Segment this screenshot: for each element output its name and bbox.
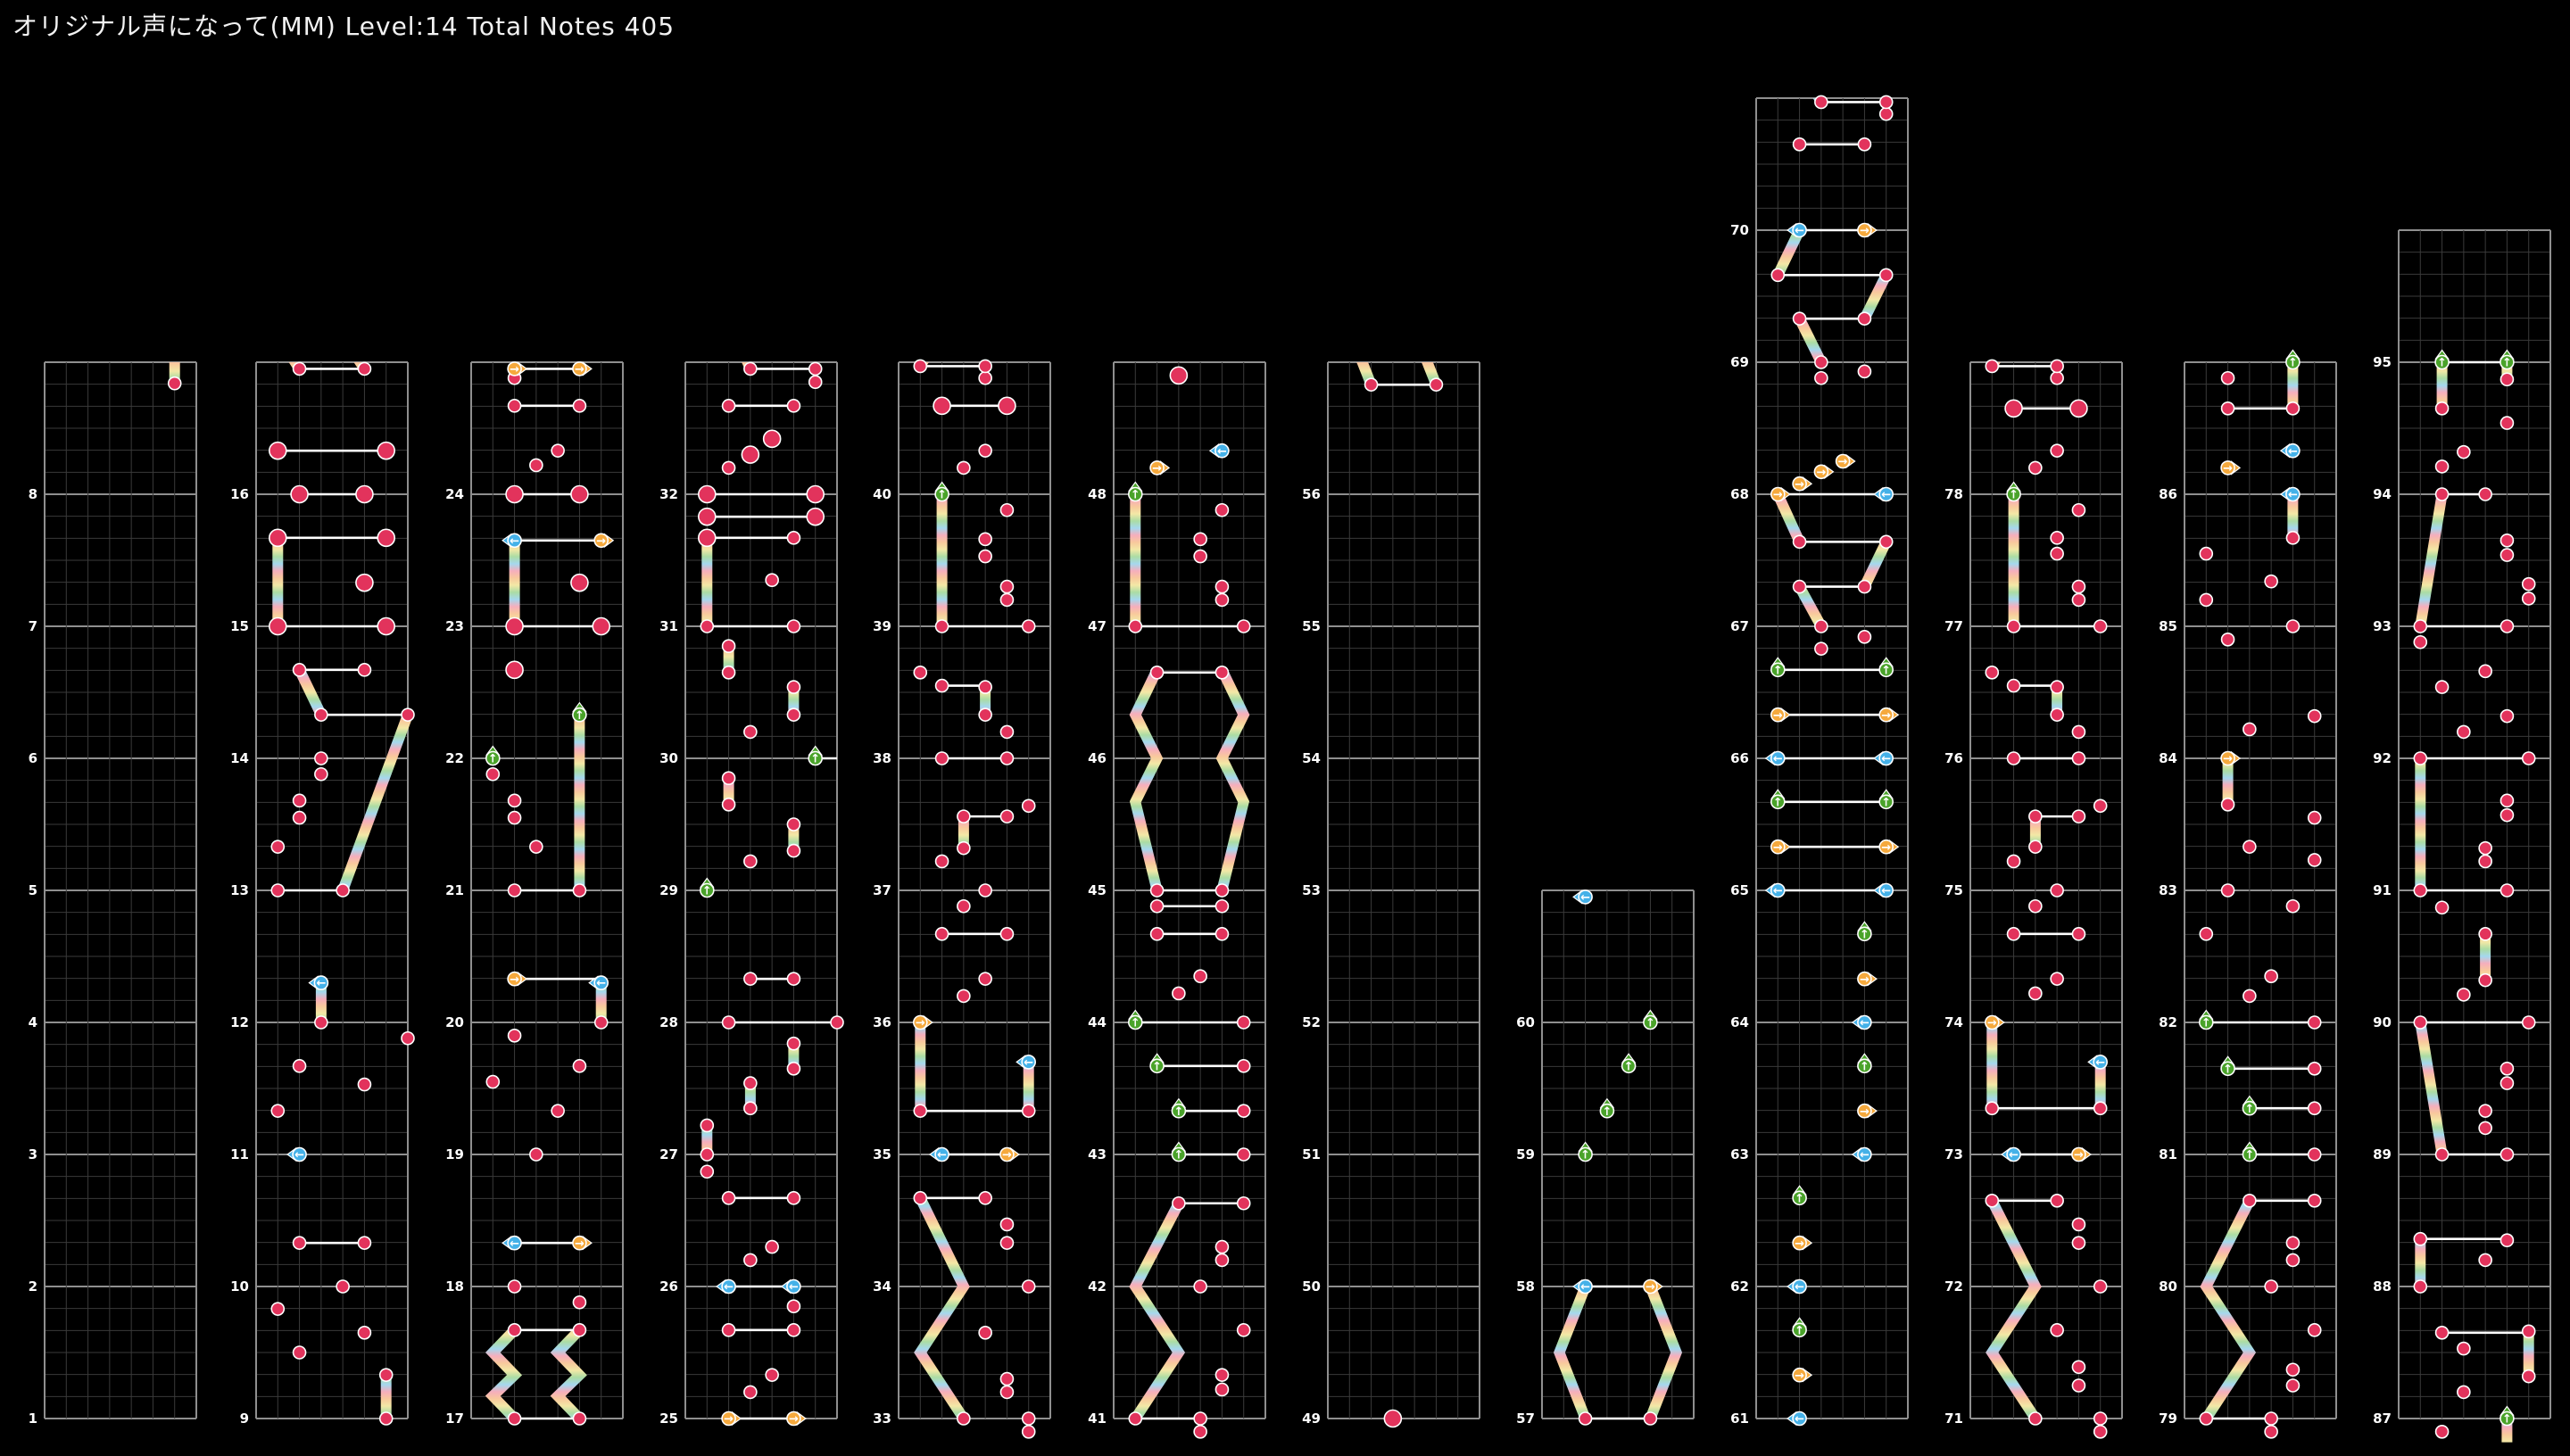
measure-label: 14: [230, 750, 249, 766]
svg-text:↑: ↑: [937, 489, 947, 502]
tap-note: [979, 708, 991, 721]
flick-note-u: ↑: [1771, 790, 1785, 809]
flick-note-r: →: [914, 1016, 933, 1030]
svg-text:←: ←: [1773, 753, 1783, 766]
tap-note: [744, 1253, 757, 1266]
flick-note-l: ←: [1853, 1016, 1871, 1030]
measure-label: 41: [1088, 1410, 1107, 1427]
tap-note: [2029, 840, 2042, 853]
tap-note: [699, 486, 716, 503]
svg-text:←: ←: [1881, 885, 1891, 898]
tap-note: [979, 372, 991, 385]
flick-note-l: ←: [1787, 1412, 1806, 1427]
svg-text:↑: ↑: [2502, 1413, 2512, 1427]
svg-text:↑: ↑: [1795, 1324, 1804, 1337]
chart-column-9: ←→↑←→↑←→↑←→↑←←→→↑↑←←→→↑↑→←→→→←→616263646…: [1730, 62, 1908, 1427]
flick-note-r: →: [1793, 1237, 1811, 1251]
svg-text:→: →: [1795, 1237, 1804, 1251]
tap-note: [958, 842, 970, 855]
tap-note: [1023, 1412, 1035, 1425]
tap-note: [723, 640, 735, 652]
tap-note: [358, 664, 370, 676]
tap-note: [573, 884, 585, 897]
tap-note: [2072, 928, 2085, 940]
measure-label: 67: [1730, 618, 1749, 634]
tap-note: [1215, 900, 1228, 913]
chart-column-12: ↑↑↑878889909192939495: [2373, 230, 2550, 1443]
chart-column-2: ←←910111213141516: [230, 349, 414, 1427]
svg-text:→: →: [2223, 753, 2233, 766]
tap-note: [2008, 855, 2020, 867]
tap-note: [936, 752, 949, 765]
flick-note-u: ↑: [486, 747, 500, 766]
tap-note: [979, 972, 991, 985]
tap-note: [2222, 633, 2234, 646]
tap-note: [723, 772, 735, 784]
svg-text:→: →: [596, 534, 606, 548]
svg-text:→: →: [724, 1413, 734, 1427]
tap-note: [1194, 1426, 1206, 1438]
flick-note-u: ↑: [2500, 351, 2514, 370]
tap-note: [723, 1192, 735, 1204]
measure-label: 43: [1088, 1146, 1107, 1162]
tap-note: [1215, 884, 1228, 897]
flick-note-l: ←: [2281, 444, 2300, 459]
tap-note: [509, 884, 521, 897]
svg-text:↑: ↑: [488, 753, 498, 766]
measure-label: 65: [1730, 882, 1749, 898]
tap-note: [2222, 884, 2234, 897]
measure-label: 12: [230, 1014, 249, 1030]
slide-path: [1135, 1204, 1179, 1419]
measure-label: 66: [1730, 750, 1749, 766]
svg-text:←: ←: [1580, 1281, 1590, 1295]
tap-note: [1815, 356, 1828, 368]
tap-note: [914, 1104, 926, 1117]
tap-note: [2309, 854, 2321, 866]
svg-text:→: →: [1860, 225, 1869, 238]
tap-note: [2008, 928, 2020, 940]
tap-note: [2436, 488, 2449, 500]
tap-note: [787, 818, 800, 831]
tap-note: [2051, 548, 2063, 560]
flick-note-u: ↑: [1879, 658, 1893, 677]
tap-note: [2458, 725, 2470, 738]
tap-note: [2414, 620, 2426, 633]
measure-label: 85: [2159, 618, 2177, 634]
flick-note-u: ↑: [1172, 1143, 1185, 1162]
flick-note-u: ↑: [2200, 1011, 2213, 1030]
svg-text:↑: ↑: [2009, 489, 2019, 502]
svg-text:←: ←: [2288, 489, 2298, 502]
measure-label: 71: [1944, 1410, 1963, 1427]
tap-note: [2094, 1412, 2107, 1425]
tap-note: [1000, 725, 1013, 738]
tap-note: [2479, 974, 2491, 987]
svg-text:←: ←: [1881, 489, 1891, 502]
flick-note-u: ↑: [1858, 1054, 1871, 1073]
tap-note: [744, 725, 757, 738]
measure-label: 45: [1088, 882, 1107, 898]
tap-note: [2500, 417, 2513, 429]
tap-note: [1815, 620, 1828, 633]
tap-note: [271, 1303, 284, 1315]
tap-note: [1023, 1104, 1035, 1117]
tap-note: [377, 529, 394, 546]
flick-note-r: →: [1836, 455, 1855, 469]
flick-note-l: ←: [1573, 890, 1592, 905]
flick-note-r: →: [573, 1237, 592, 1251]
tap-note: [1194, 550, 1206, 563]
tap-note: [2500, 373, 2513, 385]
measure-label: 17: [445, 1410, 464, 1427]
flick-note-r: →: [1793, 477, 1811, 492]
flick-note-u: ↑: [1793, 1186, 1806, 1205]
tap-note: [1238, 1104, 1250, 1117]
measure-label: 29: [659, 882, 678, 898]
svg-text:↑: ↑: [2437, 357, 2447, 370]
svg-text:→: →: [1795, 478, 1804, 492]
measure-label: 55: [1302, 618, 1321, 634]
flick-note-u: ↑: [2243, 1096, 2256, 1116]
flick-note-r: →: [1986, 1016, 2004, 1030]
svg-text:→: →: [1002, 1149, 1012, 1162]
tap-note: [2436, 1327, 2449, 1339]
svg-text:←: ←: [1795, 1413, 1804, 1427]
tap-note: [2500, 1063, 2513, 1075]
measure-label: 51: [1302, 1146, 1321, 1162]
tap-note: [509, 400, 521, 412]
measure-label: 92: [2373, 750, 2392, 766]
svg-text:↑: ↑: [1881, 664, 1891, 677]
flick-note-r: →: [1858, 224, 1877, 238]
tap-note: [1858, 631, 1870, 643]
tap-note: [2094, 1426, 2107, 1438]
tap-note: [358, 1237, 370, 1249]
svg-text:↑: ↑: [1173, 1105, 1183, 1119]
tap-note: [2479, 842, 2491, 855]
tap-note: [958, 461, 970, 474]
measure-label: 24: [445, 486, 464, 502]
flick-note-l: ←: [287, 1148, 306, 1162]
tap-note: [1000, 1373, 1013, 1386]
slide-path: [1864, 275, 1886, 318]
svg-text:↑: ↑: [1152, 1060, 1162, 1073]
tap-note: [1151, 900, 1164, 913]
tap-note: [2500, 1148, 2513, 1161]
tap-note: [1794, 312, 1806, 325]
measure-label: 15: [230, 618, 249, 634]
svg-text:→: →: [2074, 1149, 2084, 1162]
svg-text:→: →: [510, 973, 519, 987]
tap-note: [936, 680, 949, 692]
tap-note: [2072, 1218, 2085, 1230]
svg-text:↑: ↑: [702, 885, 712, 898]
svg-text:↑: ↑: [1173, 1149, 1183, 1162]
tap-note: [766, 1369, 778, 1381]
tap-note: [595, 1016, 608, 1029]
tap-note: [2458, 989, 2470, 1001]
measure-label: 27: [659, 1146, 678, 1162]
svg-text:←: ←: [510, 1237, 519, 1251]
tap-note: [2072, 581, 2085, 593]
measure-label: 73: [1944, 1146, 1963, 1162]
tap-note: [2200, 928, 2212, 940]
svg-text:→: →: [1773, 841, 1783, 855]
tap-note: [1194, 1412, 1206, 1425]
chart-column-5: ←→←→↑3334353637383940: [873, 323, 1050, 1438]
tap-note: [2309, 710, 2321, 723]
flick-note-r: →: [508, 972, 526, 987]
tap-note: [1238, 1016, 1250, 1029]
tap-note: [593, 618, 609, 635]
svg-text:→: →: [1773, 709, 1783, 723]
flick-note-r: →: [1793, 1369, 1811, 1383]
tap-note: [979, 360, 991, 372]
flick-note-r: →: [2221, 752, 2240, 766]
tap-note: [269, 618, 286, 635]
tap-note: [1880, 269, 1893, 281]
tap-note: [1215, 1253, 1228, 1266]
measure-label: 48: [1088, 486, 1107, 502]
flick-note-r: →: [1814, 465, 1833, 479]
tap-note: [1151, 928, 1164, 940]
tap-note: [2286, 402, 2299, 415]
flick-note-u: ↑: [2243, 1143, 2256, 1162]
tap-note: [336, 884, 349, 897]
flick-note-u: ↑: [2286, 351, 2300, 370]
flick-note-r: →: [1879, 708, 1898, 723]
tap-note: [2436, 1426, 2449, 1438]
slide-path: [1864, 542, 1886, 586]
tap-note: [571, 486, 588, 503]
measure-label: 83: [2159, 882, 2177, 898]
tap-note: [358, 1079, 370, 1091]
tap-note: [315, 708, 327, 721]
measure-label: 60: [1516, 1014, 1535, 1030]
chart-column-6: ↑↑↑↑↑→←4142434445464748: [1088, 362, 1265, 1438]
tap-note: [551, 444, 564, 457]
tap-note: [701, 1165, 713, 1178]
measure-label: 75: [1944, 882, 1963, 898]
tap-note: [1023, 1280, 1035, 1293]
tap-note: [1194, 1280, 1206, 1293]
tap-note: [1986, 1195, 1998, 1207]
tap-note: [2029, 1412, 2042, 1425]
tap-note: [1880, 108, 1893, 120]
flick-note-r: →: [722, 1412, 741, 1427]
measure-label: 3: [29, 1146, 37, 1162]
tap-note: [766, 574, 778, 586]
svg-text:←: ←: [2009, 1149, 2019, 1162]
tap-note: [958, 900, 970, 913]
tap-note: [2458, 1343, 2470, 1355]
tap-note: [979, 444, 991, 457]
tap-note: [744, 1077, 757, 1089]
tap-note: [2523, 752, 2535, 765]
tap-note: [269, 529, 286, 546]
tap-note: [506, 486, 523, 503]
tap-note: [787, 708, 800, 721]
tap-note: [506, 661, 523, 678]
flick-note-u: ↑: [1129, 483, 1142, 502]
tap-note: [2265, 1412, 2277, 1425]
tap-note: [551, 1104, 564, 1117]
flick-note-l: ←: [1016, 1055, 1035, 1070]
tap-note: [2414, 1016, 2426, 1029]
measure-label: 23: [445, 618, 464, 634]
tap-note: [2500, 549, 2513, 561]
tap-note: [2500, 884, 2513, 897]
tap-note: [573, 1324, 585, 1336]
measure-label: 42: [1088, 1278, 1107, 1295]
tap-note: [530, 459, 543, 471]
svg-text:↑: ↑: [1773, 664, 1783, 677]
tap-note: [1815, 95, 1828, 108]
tap-note: [294, 812, 306, 824]
tap-note: [1173, 1197, 1185, 1210]
tap-note: [2286, 1253, 2299, 1266]
flick-note-l: ←: [1766, 752, 1785, 766]
tap-note: [1215, 1383, 1228, 1395]
measure-label: 91: [2373, 882, 2392, 898]
tap-note: [723, 1016, 735, 1029]
flick-note-l: ←: [502, 1237, 521, 1251]
tap-note: [766, 1241, 778, 1253]
tap-note: [2479, 1253, 2491, 1266]
measure-label: 13: [230, 882, 249, 898]
chart-column-4: →→←←↑↑2526272829303132: [659, 329, 843, 1427]
measure-label: 53: [1302, 882, 1321, 898]
flick-note-r: →: [2072, 1148, 2091, 1162]
flick-note-u: ↑: [573, 703, 586, 723]
svg-text:↑: ↑: [1131, 1017, 1140, 1030]
chart-column-11: ↑↑↑↑→←→←↑7980818283848586: [2159, 351, 2336, 1438]
tap-note: [1986, 666, 1998, 679]
tap-note: [2265, 1426, 2277, 1438]
tap-note: [506, 618, 523, 635]
tap-note: [809, 376, 822, 388]
tap-note: [1238, 620, 1250, 633]
tap-note: [1880, 535, 1893, 548]
tap-note: [380, 1412, 393, 1425]
flick-note-r: →: [1771, 488, 1790, 502]
tap-note: [1430, 378, 1442, 391]
tap-note: [1129, 620, 1141, 633]
measure-label: 35: [873, 1146, 891, 1162]
tap-note: [1000, 1386, 1013, 1398]
tap-note: [2309, 1324, 2321, 1336]
tap-note: [936, 928, 949, 940]
svg-text:↑: ↑: [1131, 489, 1140, 502]
tap-note: [2072, 725, 2085, 738]
svg-text:→: →: [1152, 462, 1162, 476]
svg-text:←: ←: [1773, 885, 1783, 898]
tap-note: [2051, 1195, 2063, 1207]
svg-text:←: ←: [2095, 1056, 2105, 1070]
measure-label: 94: [2373, 486, 2392, 502]
tap-note: [999, 397, 1016, 414]
svg-text:←: ←: [1795, 225, 1804, 238]
tap-note: [1215, 581, 1228, 593]
tap-note: [2051, 532, 2063, 544]
tap-note: [2309, 1102, 2321, 1114]
tap-note: [2008, 620, 2020, 633]
tap-note: [787, 532, 800, 544]
tap-note: [1215, 504, 1228, 517]
tap-note: [380, 1369, 393, 1381]
tap-note: [787, 1192, 800, 1204]
tap-note: [787, 972, 800, 985]
tap-note: [2309, 812, 2321, 824]
svg-text:→: →: [1881, 841, 1891, 855]
flick-note-r: →: [1150, 461, 1169, 476]
measure-label: 16: [230, 486, 249, 502]
measure-label: 69: [1730, 354, 1749, 370]
tap-note: [2200, 1412, 2212, 1425]
measure-label: 50: [1302, 1278, 1321, 1295]
tap-note: [358, 1327, 370, 1339]
measure-label: 33: [873, 1410, 891, 1427]
tap-note: [356, 486, 373, 503]
svg-text:→: →: [916, 1017, 925, 1030]
tap-note: [723, 666, 735, 679]
tap-note: [1238, 1197, 1250, 1210]
tap-note: [2243, 1195, 2256, 1207]
measure-label: 31: [659, 618, 678, 634]
tap-note: [2072, 810, 2085, 823]
tap-note: [1238, 1148, 1250, 1161]
tap-note: [2436, 402, 2449, 415]
measure-label: 28: [659, 1014, 678, 1030]
tap-note: [315, 768, 327, 781]
measure-label: 82: [2159, 1014, 2177, 1030]
tap-note: [2286, 1363, 2299, 1376]
svg-text:←: ←: [510, 534, 519, 548]
tap-note: [1000, 752, 1013, 765]
slide-path: [920, 323, 946, 367]
measure-label: 20: [445, 1014, 464, 1030]
tap-note: [509, 1324, 521, 1336]
measure-label: 36: [873, 1014, 891, 1030]
tap-note: [291, 486, 308, 503]
flick-note-l: ←: [1787, 224, 1806, 238]
tap-note: [271, 884, 284, 897]
measure-label: 54: [1302, 750, 1321, 766]
flick-note-u: ↑: [1644, 1011, 1657, 1030]
svg-text:→: →: [575, 363, 584, 376]
tap-note: [1194, 533, 1206, 545]
tap-note: [1173, 987, 1185, 999]
flick-note-u: ↑: [2007, 483, 2020, 502]
measure-label: 47: [1088, 618, 1107, 634]
svg-text:↑: ↑: [1881, 796, 1891, 809]
measure-label: 9: [240, 1410, 249, 1427]
tap-note: [2051, 372, 2063, 385]
tap-note: [1023, 620, 1035, 633]
measure-label: 37: [873, 882, 891, 898]
tap-note: [2523, 1325, 2535, 1337]
tap-note: [979, 884, 991, 897]
measure-label: 95: [2373, 354, 2392, 370]
flick-note-r: →: [1000, 1148, 1019, 1162]
tap-note: [269, 443, 286, 459]
tap-note: [2414, 752, 2426, 765]
tap-note: [2072, 1379, 2085, 1392]
tap-note: [787, 1300, 800, 1312]
tap-note: [2436, 1148, 2449, 1161]
measure-label: 58: [1516, 1278, 1535, 1295]
